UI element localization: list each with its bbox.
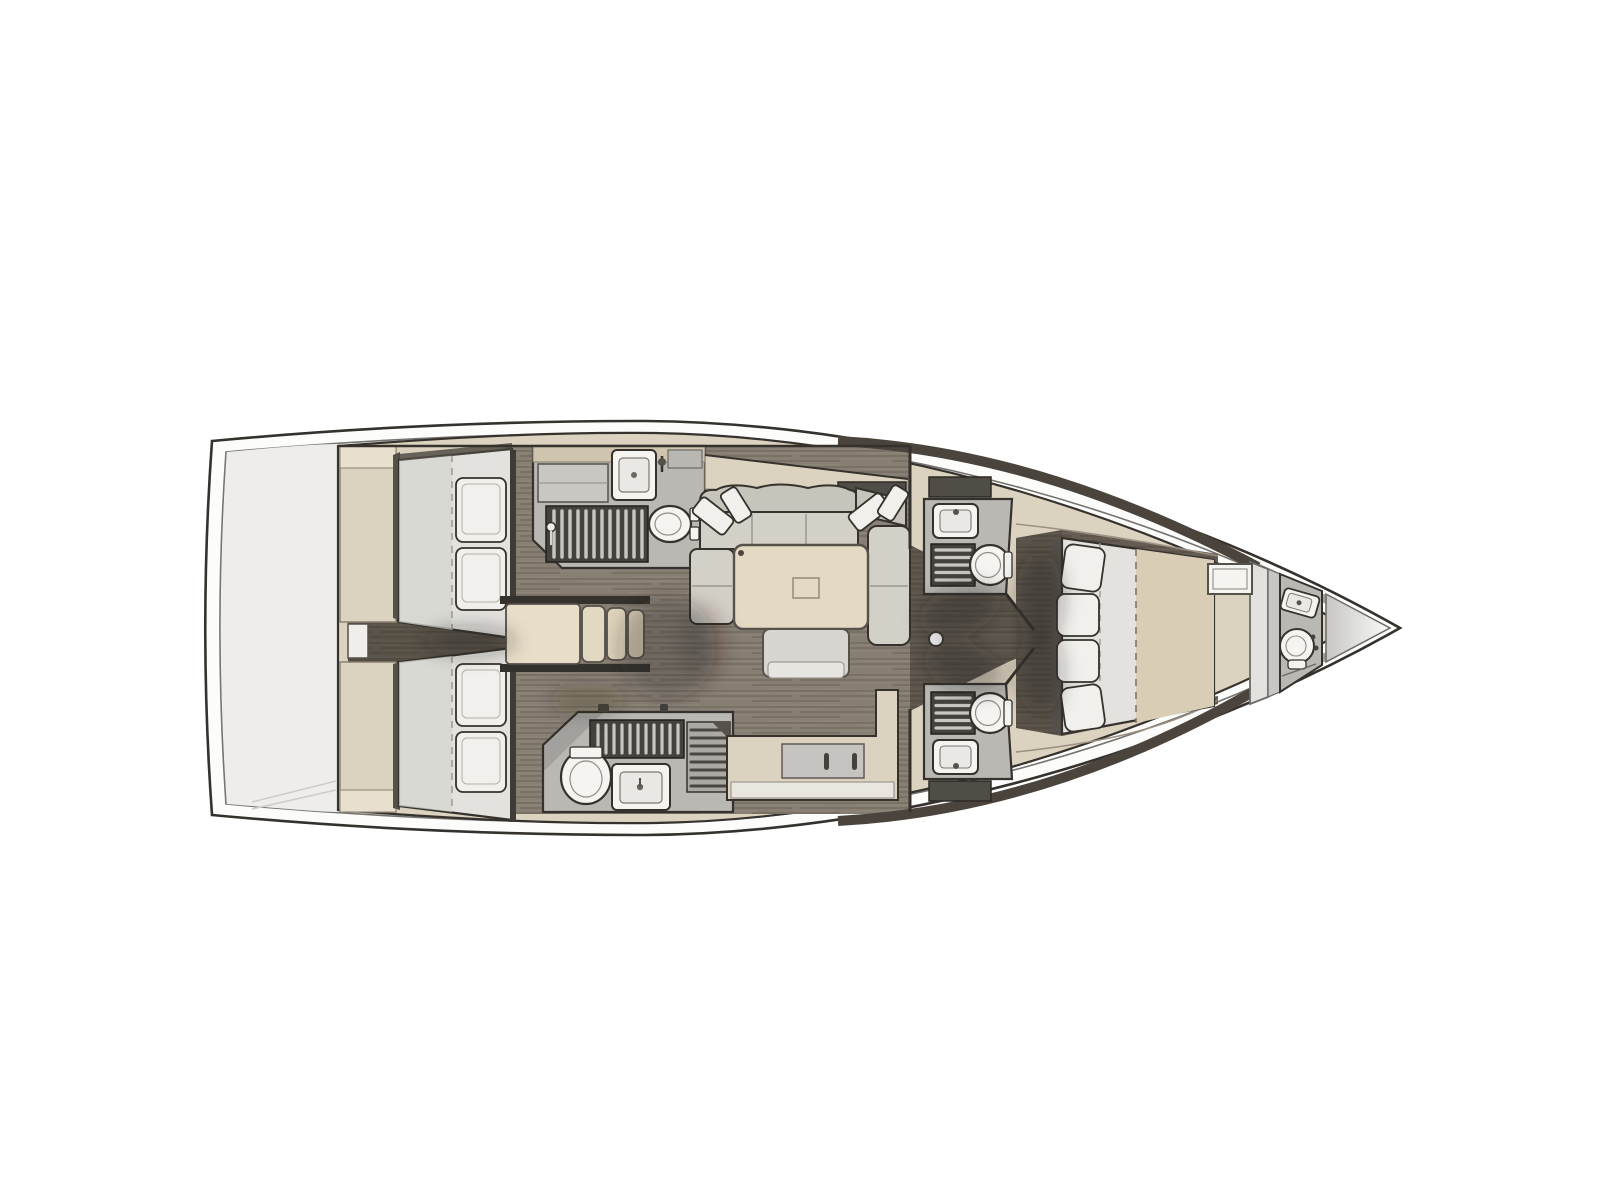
- corridor-wardrobe: [348, 624, 368, 658]
- toilet: [970, 693, 1012, 733]
- locker: [929, 477, 991, 497]
- sink: [612, 450, 656, 500]
- shelf: [668, 450, 702, 468]
- shower-head-icon: [547, 523, 556, 532]
- blanket: [1136, 549, 1214, 723]
- headboard-trim: [510, 646, 516, 822]
- shower-grate: [590, 720, 684, 758]
- yacht-floor-plan: [0, 0, 1600, 1200]
- transom-area: [221, 444, 338, 812]
- bolster-cushion: [1060, 683, 1106, 732]
- door-hardware: [660, 704, 668, 712]
- shower-grate: [931, 692, 975, 734]
- bench-seat: [763, 629, 849, 678]
- head-bow: [1280, 574, 1322, 692]
- wardrobe-partition: [1250, 562, 1280, 704]
- sink: [933, 504, 978, 538]
- locker: [929, 781, 991, 801]
- shower-grate: [931, 544, 975, 586]
- counter-face: [731, 782, 894, 798]
- bench-grate: [687, 722, 730, 792]
- wardrobe-column: [340, 446, 396, 622]
- landing-step: [506, 604, 580, 664]
- bolster-cushion: [1060, 543, 1106, 592]
- head-aft-starboard: [543, 704, 733, 812]
- seat-hatch: [1208, 564, 1252, 594]
- handle: [852, 753, 857, 770]
- step: [582, 606, 605, 662]
- dining-table: [734, 545, 868, 629]
- head-aft-port: [533, 446, 705, 568]
- toilet: [649, 506, 699, 542]
- aft-cabin-port: [340, 443, 516, 640]
- sink: [612, 764, 670, 810]
- aft-cabin-starboard: [340, 646, 516, 822]
- canvas: [0, 0, 1600, 1200]
- handle: [824, 753, 829, 770]
- shower-grate: [546, 506, 648, 562]
- appliance-front: [782, 744, 864, 778]
- sink: [933, 740, 978, 774]
- toilet: [970, 545, 1012, 585]
